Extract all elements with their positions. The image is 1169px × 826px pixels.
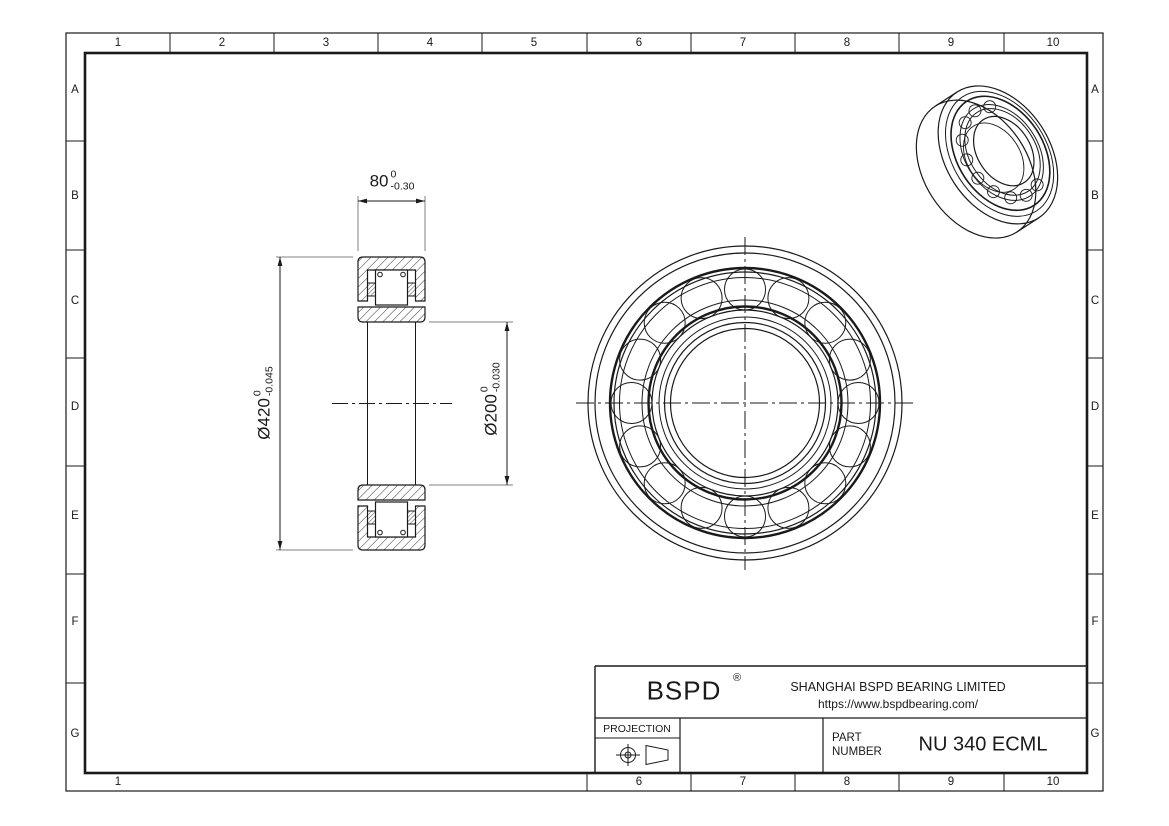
dimension-bore-value: Ø200 [481, 394, 501, 436]
company-website: https://www.bspdbearing.com/ [818, 697, 978, 711]
registered-trademark-icon: ® [733, 672, 741, 684]
grid-col-label: 5 [531, 37, 537, 49]
grid-col-label-bottom: 10 [1047, 776, 1060, 788]
grid-col-label: 2 [219, 37, 225, 49]
dimension-bore-tolerance: 0 -0.030 [479, 362, 502, 392]
grid-col-label-bottom: 1 [115, 776, 121, 788]
grid-col-label-bottom: 6 [636, 776, 642, 788]
engineering-drawing-sheet: 1 2 3 4 5 6 7 8 9 10 1 6 7 8 9 10 A B C … [0, 0, 1169, 826]
grid-col-label-bottom: 7 [740, 776, 746, 788]
part-number-value: NU 340 ECML [919, 734, 1048, 757]
grid-col-label: 6 [636, 37, 642, 49]
grid-row-label-right: A [1091, 84, 1099, 96]
grid-col-label: 1 [115, 37, 121, 49]
section-view [332, 257, 452, 550]
grid-row-label-right: B [1091, 190, 1099, 202]
part-number-label: PART NUMBER [832, 731, 882, 760]
projection-label: PROJECTION [603, 723, 671, 735]
grid-row-label-right: G [1091, 728, 1100, 740]
grid-col-label-bottom: 8 [844, 776, 850, 788]
grid-col-label: 9 [948, 37, 954, 49]
grid-row-label: F [71, 616, 78, 628]
grid-row-label-right: E [1091, 510, 1099, 522]
grid-row-label: E [71, 510, 79, 522]
front-view [576, 237, 914, 570]
grid-row-label-right: C [1091, 295, 1099, 307]
dimension-od-value: Ø420 [254, 398, 274, 440]
grid-col-label-bottom: 9 [948, 776, 954, 788]
grid-row-label: C [71, 295, 79, 307]
grid-col-label: 10 [1047, 37, 1060, 49]
grid-col-label: 3 [323, 37, 329, 49]
grid-row-label-right: D [1091, 401, 1099, 413]
grid-row-label: D [71, 401, 79, 413]
grid-row-label: B [71, 190, 79, 202]
dimension-outer-diameter: Ø420 0 -0.045 [252, 366, 275, 439]
dimension-width: 80 0 -0.30 [370, 169, 415, 192]
dimension-od-tolerance: 0 -0.045 [252, 366, 275, 396]
company-name: SHANGHAI BSPD BEARING LIMITED [790, 680, 1005, 694]
brand-logo: BSPD [647, 676, 722, 707]
drawing-linework [0, 0, 1169, 826]
grid-row-label: G [71, 728, 80, 740]
grid-col-label: 8 [844, 37, 850, 49]
dimension-bore-diameter: Ø200 0 -0.030 [479, 362, 502, 435]
projection-symbol-icon [616, 744, 668, 766]
isometric-view [892, 64, 1083, 261]
grid-row-label-right: F [1091, 616, 1098, 628]
drawing-frame [66, 33, 1103, 791]
grid-col-label: 7 [740, 37, 746, 49]
dimension-width-value: 80 [370, 171, 389, 191]
grid-row-label: A [71, 84, 79, 96]
dimension-width-tolerance: 0 -0.30 [390, 169, 414, 192]
grid-col-label: 4 [427, 37, 433, 49]
